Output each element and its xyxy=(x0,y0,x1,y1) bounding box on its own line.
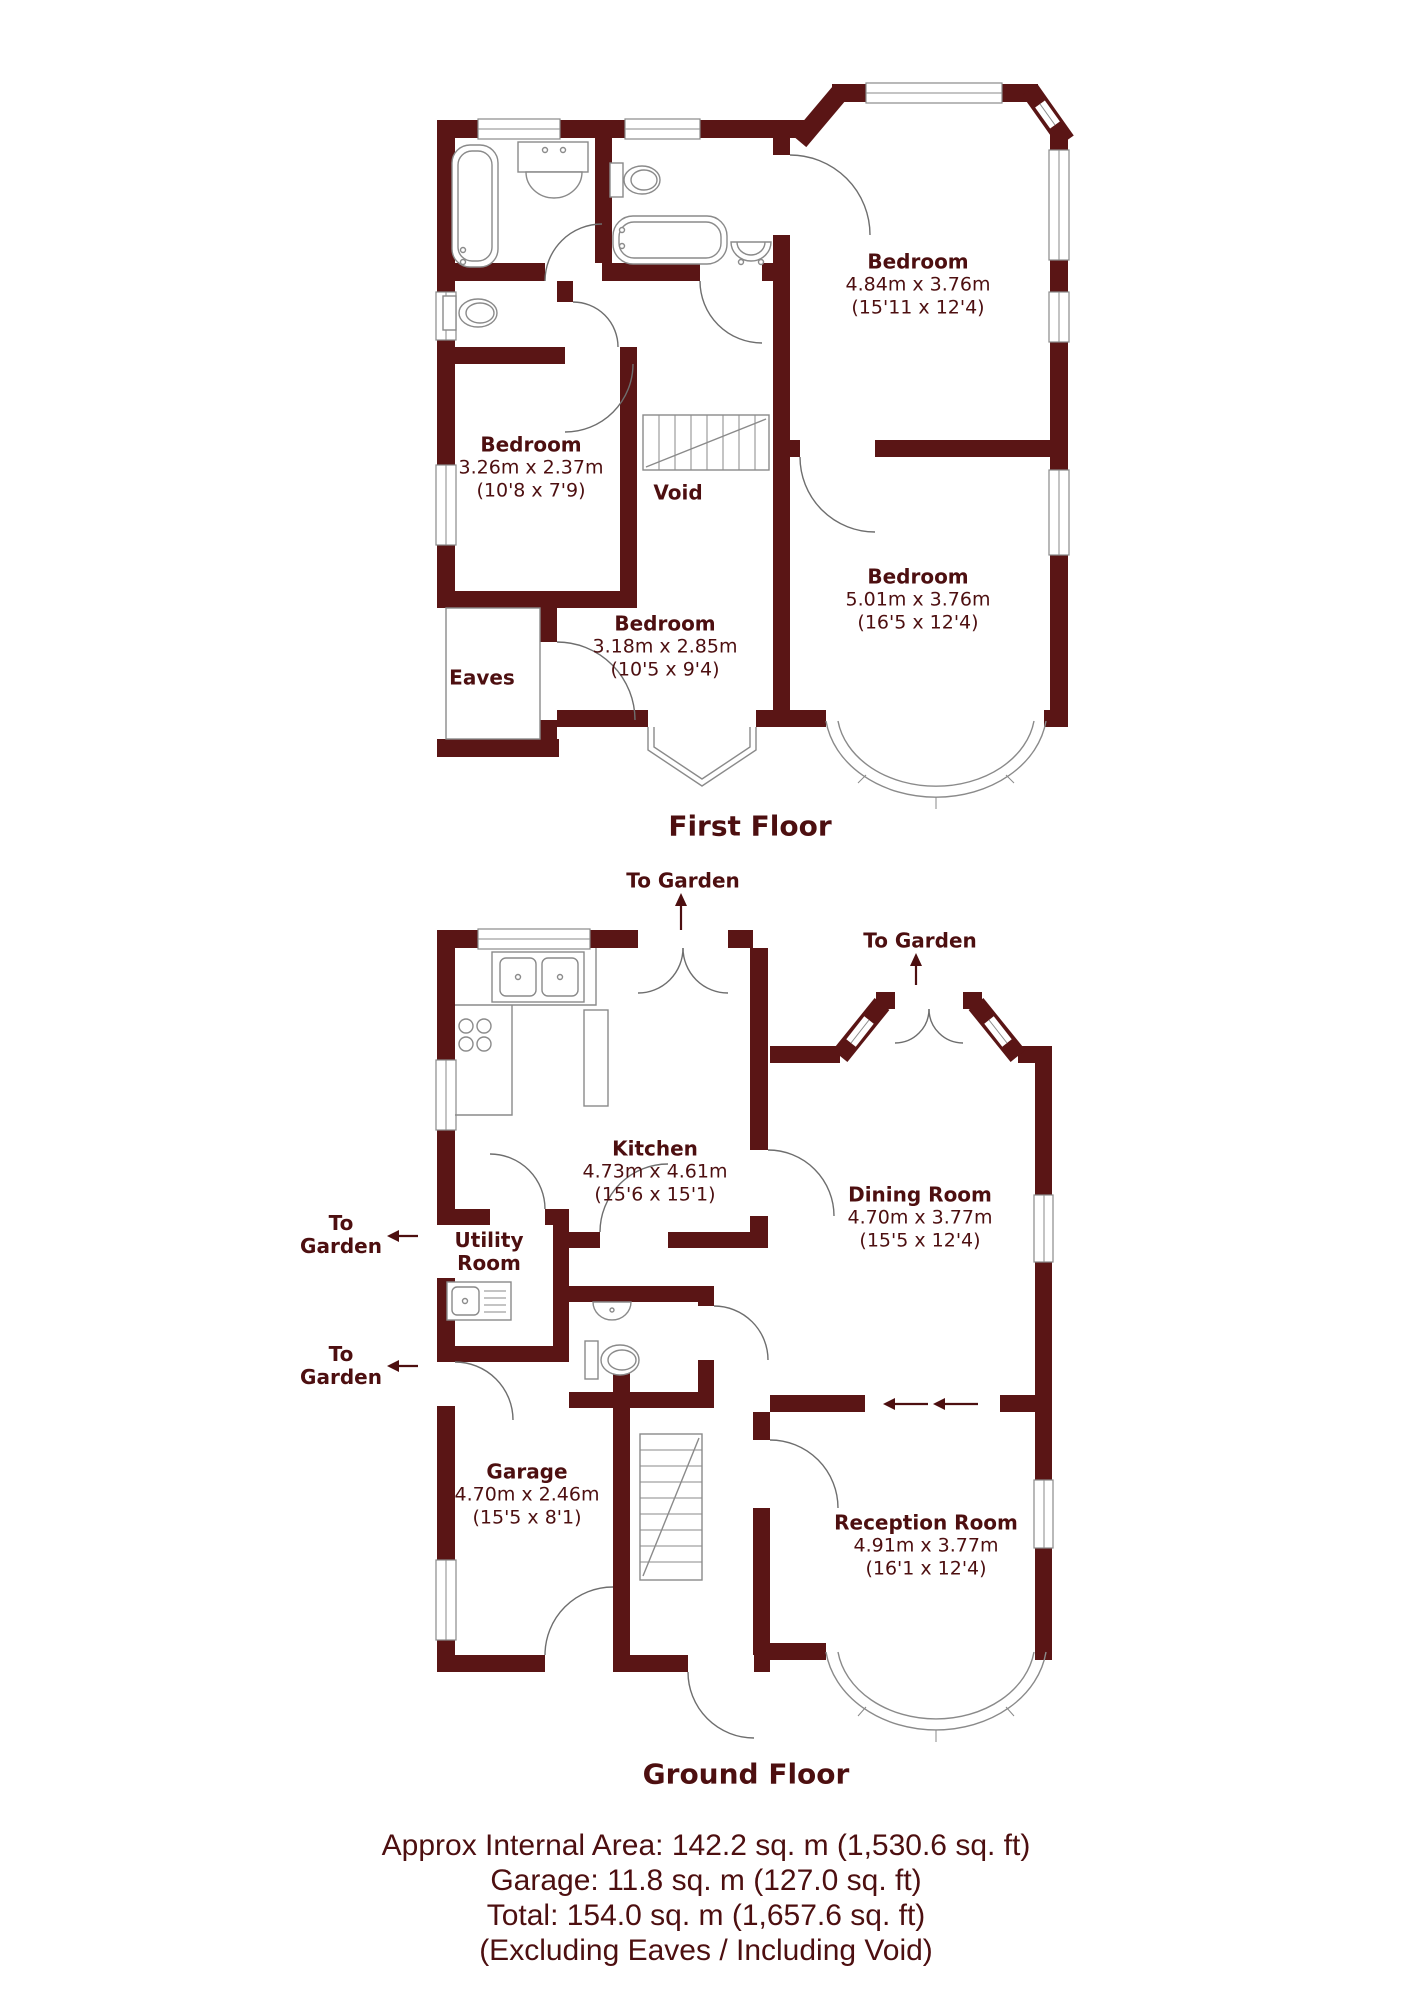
stairs-icon xyxy=(640,1434,702,1580)
toilet-icon xyxy=(585,1341,639,1379)
room-dims-imperial: (10'8 x 7'9) xyxy=(459,480,604,503)
ground-floor-title: Ground Floor xyxy=(643,1758,850,1791)
to-garden-line: To xyxy=(300,1212,382,1235)
first-floor-title: First Floor xyxy=(668,810,831,843)
room-label-utility: Utility Room xyxy=(455,1229,524,1275)
room-dims-metric: 4.70m x 2.46m xyxy=(455,1484,600,1507)
sink-icon xyxy=(593,1302,631,1320)
area-summary-line: Garage: 11.8 sq. m (127.0 sq. ft) xyxy=(382,1863,1031,1898)
stairs-icon xyxy=(643,415,769,470)
room-label-void: Void xyxy=(653,482,702,505)
room-dims-metric: 3.18m x 2.85m xyxy=(593,636,738,659)
room-dims-metric: 4.91m x 3.77m xyxy=(834,1535,1018,1558)
toilet-icon xyxy=(443,296,497,330)
room-name: Bedroom xyxy=(593,613,738,636)
sink-icon xyxy=(518,142,588,198)
to-garden-line: Garden xyxy=(300,1235,382,1258)
garden-arrow-up xyxy=(910,953,922,985)
room-name: Bedroom xyxy=(846,251,991,274)
room-name: Dining Room xyxy=(848,1184,993,1207)
room-name: Room xyxy=(455,1252,524,1275)
kitchen-sink-icon xyxy=(492,952,584,1002)
room-dims-imperial: (10'5 x 9'4) xyxy=(593,659,738,682)
room-dims-imperial: (15'6 x 15'1) xyxy=(583,1184,728,1207)
room-dims-metric: 4.84m x 3.76m xyxy=(846,274,991,297)
utility-sink-icon xyxy=(447,1282,511,1320)
room-dims-metric: 4.70m x 3.77m xyxy=(848,1207,993,1230)
double-door-arrows xyxy=(883,1398,978,1410)
to-garden-line: To xyxy=(300,1343,382,1366)
bay-window-pentagon xyxy=(648,727,756,786)
room-label-bedroom-1: Bedroom 4.84m x 3.76m (15'11 x 12'4) xyxy=(846,251,991,320)
sink-icon xyxy=(731,242,771,265)
room-dims-imperial: (15'11 x 12'4) xyxy=(846,297,991,320)
room-label-reception: Reception Room 4.91m x 3.77m (16'1 x 12'… xyxy=(834,1512,1018,1581)
room-name: Reception Room xyxy=(834,1512,1018,1535)
room-dims-imperial: (16'1 x 12'4) xyxy=(834,1558,1018,1581)
bay-window-oval xyxy=(826,1652,1046,1742)
room-label-kitchen: Kitchen 4.73m x 4.61m (15'6 x 15'1) xyxy=(583,1138,728,1207)
room-dims-imperial: (15'5 x 12'4) xyxy=(848,1230,993,1253)
area-summary-line: Total: 154.0 sq. m (1,657.6 sq. ft) xyxy=(382,1898,1031,1933)
room-dims-imperial: (15'5 x 8'1) xyxy=(455,1507,600,1530)
room-dims-metric: 5.01m x 3.76m xyxy=(846,589,991,612)
room-label-bedroom-4: Bedroom 3.18m x 2.85m (10'5 x 9'4) xyxy=(593,613,738,682)
to-garden-label-garage: To Garden xyxy=(300,1343,382,1389)
toilet-icon xyxy=(610,163,660,197)
ground-floor-plan xyxy=(387,893,1053,1742)
area-summary: Approx Internal Area: 142.2 sq. m (1,530… xyxy=(382,1828,1031,1968)
garden-arrow-left xyxy=(387,1230,418,1242)
room-name: Utility xyxy=(455,1229,524,1252)
hob-icon xyxy=(459,1019,491,1051)
to-garden-label-utility: To Garden xyxy=(300,1212,382,1258)
garden-arrow-left xyxy=(387,1360,418,1372)
floorplan-document: Bedroom 4.84m x 3.76m (15'11 x 12'4) Bed… xyxy=(0,0,1413,1999)
room-label-garage: Garage 4.70m x 2.46m (15'5 x 8'1) xyxy=(455,1461,600,1530)
room-name: Kitchen xyxy=(583,1138,728,1161)
area-summary-line: (Excluding Eaves / Including Void) xyxy=(382,1933,1031,1968)
room-label-eaves: Eaves xyxy=(449,667,515,690)
to-garden-label-top: To Garden xyxy=(626,870,740,893)
room-label-dining: Dining Room 4.70m x 3.77m (15'5 x 12'4) xyxy=(848,1184,993,1253)
bay-window-oval xyxy=(826,721,1046,809)
room-label-bedroom-2: Bedroom 3.26m x 2.37m (10'8 x 7'9) xyxy=(459,434,604,503)
room-label-bedroom-3: Bedroom 5.01m x 3.76m (16'5 x 12'4) xyxy=(846,566,991,635)
room-name: Bedroom xyxy=(846,566,991,589)
room-dims-imperial: (16'5 x 12'4) xyxy=(846,612,991,635)
room-dims-metric: 4.73m x 4.61m xyxy=(583,1161,728,1184)
to-garden-line: Garden xyxy=(300,1366,382,1389)
area-summary-line: Approx Internal Area: 142.2 sq. m (1,530… xyxy=(382,1828,1031,1863)
floor-plan-svg xyxy=(0,0,1413,1999)
bath-icon xyxy=(613,216,727,264)
ground-floor-doors xyxy=(455,948,963,1738)
to-garden-label-dining: To Garden xyxy=(863,930,977,953)
room-name: Garage xyxy=(455,1461,600,1484)
room-name: Bedroom xyxy=(459,434,604,457)
bath-icon xyxy=(452,145,498,267)
garden-arrow-up xyxy=(675,893,687,930)
room-dims-metric: 3.26m x 2.37m xyxy=(459,457,604,480)
